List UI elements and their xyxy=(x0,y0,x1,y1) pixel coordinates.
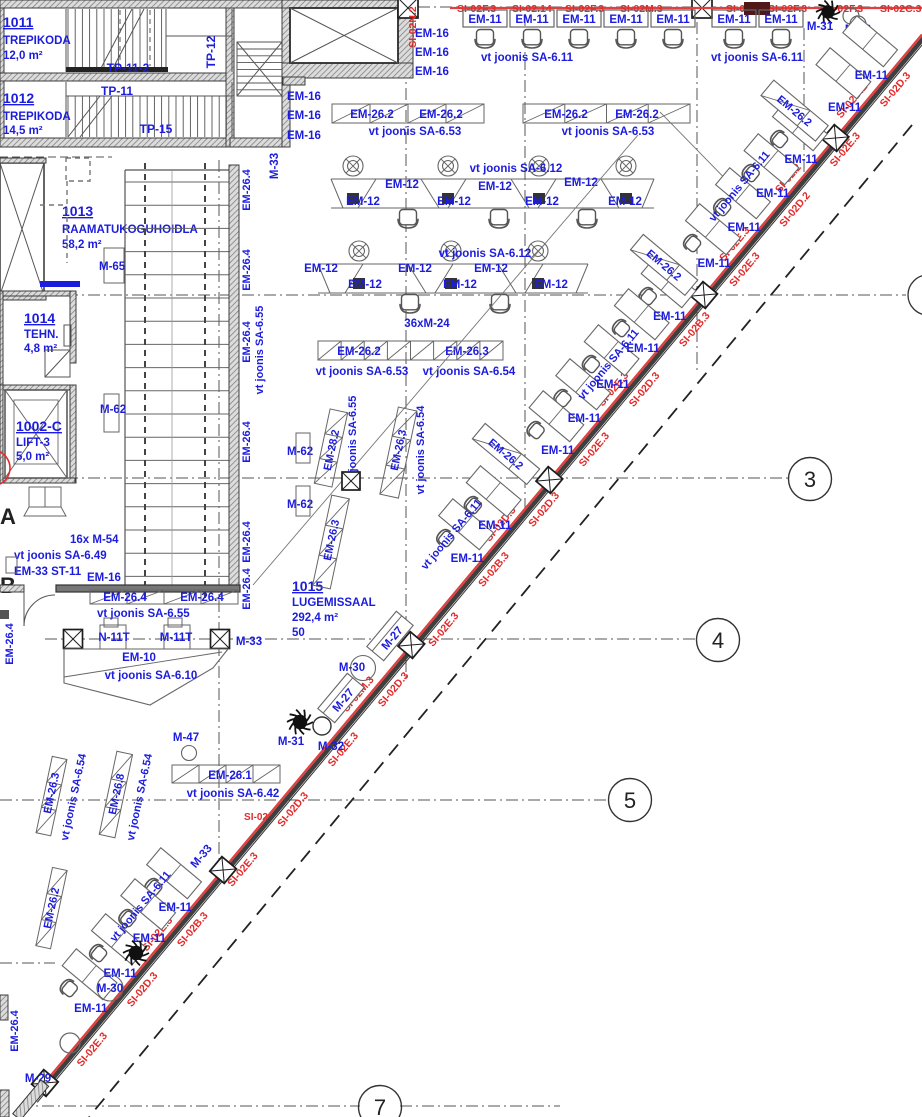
svg-text:TREPIKODA: TREPIKODA xyxy=(3,35,71,47)
svg-text:SI-02C.3: SI-02C.3 xyxy=(880,3,922,15)
svg-text:vt joonis SA-6.53: vt joonis SA-6.53 xyxy=(562,126,655,138)
svg-text:M-30: M-30 xyxy=(97,983,123,995)
svg-text:LIFT-3: LIFT-3 xyxy=(16,437,50,449)
svg-text:TP-15: TP-15 xyxy=(140,122,173,136)
svg-text:vt joonis SA-6.11: vt joonis SA-6.11 xyxy=(711,52,804,64)
svg-text:RAAMATUKOGUHOIDLA: RAAMATUKOGUHOIDLA xyxy=(62,224,198,236)
svg-text:EM-16: EM-16 xyxy=(415,28,449,40)
svg-text:4,8 m²: 4,8 m² xyxy=(24,343,57,355)
svg-text:EM-26.4: EM-26.4 xyxy=(4,622,16,664)
svg-text:EM-11: EM-11 xyxy=(468,14,502,26)
svg-text:EM-11: EM-11 xyxy=(764,14,798,26)
svg-text:EM-26.4: EM-26.4 xyxy=(103,592,147,604)
svg-text:M-31: M-31 xyxy=(807,21,834,33)
svg-text:EM-12: EM-12 xyxy=(478,181,512,193)
svg-text:M-33: M-33 xyxy=(236,636,262,648)
svg-text:A: A xyxy=(0,504,16,529)
svg-text:EM-26.4: EM-26.4 xyxy=(241,168,253,210)
svg-text:EM-26.4: EM-26.4 xyxy=(241,567,253,609)
svg-text:EM-11: EM-11 xyxy=(562,14,596,26)
svg-text:1002-C: 1002-C xyxy=(16,418,62,434)
svg-text:EM-11: EM-11 xyxy=(717,14,751,26)
svg-text:EM-26.2: EM-26.2 xyxy=(337,346,380,358)
svg-text:EM-26.4: EM-26.4 xyxy=(241,520,253,562)
svg-text:LUGEMISSAAL: LUGEMISSAAL xyxy=(292,597,376,609)
svg-text:vt joonis SA-6.10: vt joonis SA-6.10 xyxy=(105,670,198,682)
svg-text:M-11T: M-11T xyxy=(160,632,193,644)
svg-text:EM-11: EM-11 xyxy=(515,14,549,26)
svg-text:EM-11: EM-11 xyxy=(653,311,687,323)
svg-text:EM-12: EM-12 xyxy=(437,196,471,208)
svg-text:EM-12: EM-12 xyxy=(608,196,642,208)
svg-text:36xM-24: 36xM-24 xyxy=(404,318,450,330)
svg-text:EM-11: EM-11 xyxy=(656,14,690,26)
svg-text:EM-12: EM-12 xyxy=(398,263,432,275)
svg-text:EM-26.4: EM-26.4 xyxy=(241,420,253,462)
svg-text:EM-10: EM-10 xyxy=(122,652,156,664)
svg-text:EM-16: EM-16 xyxy=(415,66,449,78)
svg-text:EM-26.1: EM-26.1 xyxy=(208,770,252,782)
svg-text:EM-26.2: EM-26.2 xyxy=(350,109,393,121)
svg-text:TP-12: TP-12 xyxy=(204,35,218,68)
svg-text:4: 4 xyxy=(712,628,724,653)
svg-text:EM-26.2: EM-26.2 xyxy=(419,109,462,121)
svg-text:12,0 m²: 12,0 m² xyxy=(3,50,43,62)
svg-text:N-11T: N-11T xyxy=(98,632,129,644)
svg-text:EM-11: EM-11 xyxy=(478,520,512,532)
svg-text:vt joonis SA-6.54: vt joonis SA-6.54 xyxy=(423,366,516,378)
svg-text:EM-16: EM-16 xyxy=(287,110,321,122)
svg-text:vt joonis SA-6.53: vt joonis SA-6.53 xyxy=(369,126,462,138)
svg-text:EM-16: EM-16 xyxy=(287,130,321,142)
svg-text:EM-11: EM-11 xyxy=(74,1003,108,1015)
svg-text:TEHN.: TEHN. xyxy=(24,329,59,341)
svg-text:EM-11: EM-11 xyxy=(828,102,862,114)
svg-text:TREPIKODA: TREPIKODA xyxy=(3,111,71,123)
svg-text:EM-12: EM-12 xyxy=(443,279,477,291)
svg-text:1014: 1014 xyxy=(24,310,55,326)
svg-text:vt joonis SA-6.54: vt joonis SA-6.54 xyxy=(415,405,427,495)
svg-text:EM-12: EM-12 xyxy=(348,279,382,291)
svg-text:EM-16: EM-16 xyxy=(415,47,449,59)
svg-text:EM-16: EM-16 xyxy=(287,91,321,103)
svg-text:EM-11: EM-11 xyxy=(541,445,575,457)
svg-text:EM-11: EM-11 xyxy=(784,154,818,166)
svg-text:EM-11: EM-11 xyxy=(159,902,193,914)
svg-text:EM-11: EM-11 xyxy=(568,413,602,425)
svg-text:58,2 m²: 58,2 m² xyxy=(62,239,102,251)
svg-text:M-31: M-31 xyxy=(278,736,305,748)
svg-text:EM-16: EM-16 xyxy=(87,572,121,584)
svg-text:SI-02N.2: SI-02N.2 xyxy=(407,6,419,48)
svg-text:EM-11: EM-11 xyxy=(609,14,643,26)
svg-text:M-62: M-62 xyxy=(287,499,313,511)
svg-text:5,0 m²: 5,0 m² xyxy=(16,451,49,463)
svg-text:EM-11: EM-11 xyxy=(133,933,167,945)
svg-text:EM-26.4: EM-26.4 xyxy=(241,320,253,362)
svg-text:vt joonis SA-6.55: vt joonis SA-6.55 xyxy=(347,396,359,485)
svg-text:EM-33 ST-11: EM-33 ST-11 xyxy=(14,566,82,578)
svg-text:vt joonis SA-6.11: vt joonis SA-6.11 xyxy=(481,52,574,64)
svg-text:EM-12: EM-12 xyxy=(304,263,338,275)
svg-text:50: 50 xyxy=(292,627,305,639)
svg-text:TP-11-2: TP-11-2 xyxy=(107,61,150,75)
svg-text:vt joonis SA-6.42: vt joonis SA-6.42 xyxy=(187,788,280,800)
svg-text:vt joonis SA-6.53: vt joonis SA-6.53 xyxy=(316,366,409,378)
svg-text:EM-26.4: EM-26.4 xyxy=(241,248,253,290)
svg-text:5: 5 xyxy=(624,788,636,813)
svg-text:EM-12: EM-12 xyxy=(525,196,559,208)
svg-text:vt joonis SA-6.49: vt joonis SA-6.49 xyxy=(14,550,107,562)
svg-text:EM-11: EM-11 xyxy=(756,188,790,200)
svg-text:vt joonis SA-6.55: vt joonis SA-6.55 xyxy=(254,306,266,395)
svg-text:EM-11: EM-11 xyxy=(728,222,762,234)
svg-text:16x M-54: 16x M-54 xyxy=(70,534,119,546)
svg-text:M-47: M-47 xyxy=(173,732,199,744)
svg-text:EM-26.4: EM-26.4 xyxy=(9,1009,21,1051)
svg-text:1011: 1011 xyxy=(3,14,34,30)
svg-text:EM-11: EM-11 xyxy=(451,553,485,565)
svg-text:EM-12: EM-12 xyxy=(385,179,419,191)
svg-text:3: 3 xyxy=(804,467,816,492)
svg-text:EM-26.2: EM-26.2 xyxy=(615,109,658,121)
svg-text:M-33: M-33 xyxy=(269,153,281,179)
svg-text:EM-11: EM-11 xyxy=(103,968,137,980)
svg-text:292,4 m²: 292,4 m² xyxy=(292,612,338,624)
svg-text:EM-12: EM-12 xyxy=(474,263,508,275)
svg-text:M-32: M-32 xyxy=(318,741,344,753)
svg-text:14,5 m²: 14,5 m² xyxy=(3,125,43,137)
svg-text:EM-12: EM-12 xyxy=(534,279,568,291)
svg-text:EM-26.4: EM-26.4 xyxy=(180,592,224,604)
svg-text:M-62: M-62 xyxy=(287,446,313,458)
svg-text:7: 7 xyxy=(374,1095,386,1117)
svg-text:M-30: M-30 xyxy=(339,662,365,674)
svg-text:vt joonis SA-6.12: vt joonis SA-6.12 xyxy=(470,163,563,175)
svg-text:EM-11: EM-11 xyxy=(855,70,889,82)
svg-text:M-65: M-65 xyxy=(99,261,126,273)
svg-text:vt joonis SA-6.12: vt joonis SA-6.12 xyxy=(439,248,532,260)
svg-text:EM-12: EM-12 xyxy=(346,196,380,208)
svg-text:EM-26.2: EM-26.2 xyxy=(544,109,587,121)
svg-text:EM-11: EM-11 xyxy=(697,258,731,270)
svg-text:1012: 1012 xyxy=(3,90,34,106)
